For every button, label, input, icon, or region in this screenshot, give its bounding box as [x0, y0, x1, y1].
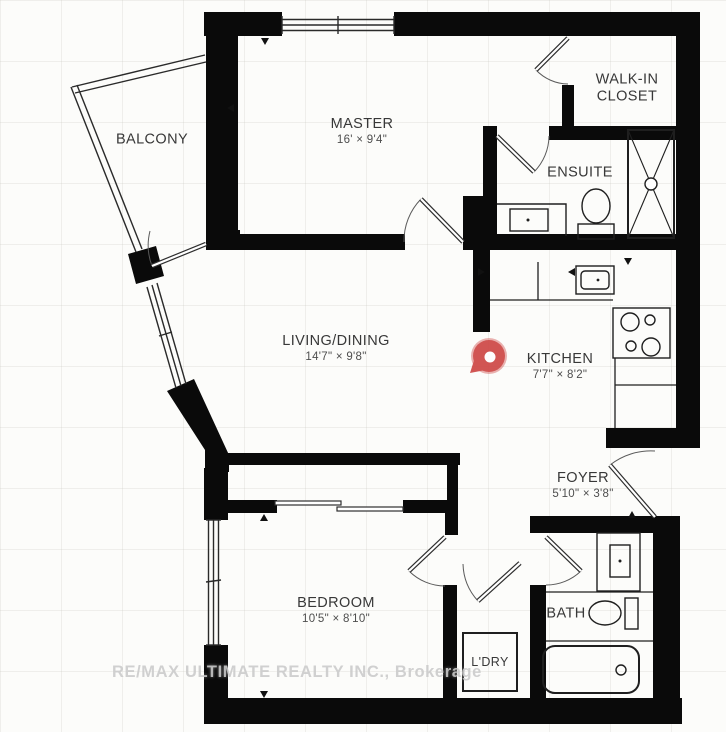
location-pin-icon: [470, 338, 507, 374]
closet-door-arc: [536, 70, 568, 84]
laundry-door-arc: [463, 564, 478, 601]
floor-plan-drawing: [0, 0, 726, 732]
stove-icon: [613, 308, 670, 358]
bathtub-icon: [543, 646, 639, 693]
kitchen-sink-icon: [576, 266, 614, 294]
floor-plan: BALCONY MASTER 16' × 9'4" WALK-IN CLOSET…: [0, 0, 726, 732]
ensuite-door-arc: [534, 136, 549, 172]
bath-door-arc: [546, 571, 581, 585]
ensuite-vanity-sink-icon: [497, 204, 566, 236]
ensuite-toilet-icon: [578, 189, 614, 239]
master-door-arc: [404, 199, 421, 242]
brokerage-watermark: RE/MAX ULTIMATE REALTY INC., Brokerage: [112, 663, 482, 682]
sliding-door: [275, 501, 403, 511]
bedroom-door-arc: [409, 571, 445, 586]
shower-icon: [628, 130, 674, 238]
washer-icon: [463, 633, 517, 691]
bath-toilet-icon: [589, 598, 638, 629]
entry-door-arc: [610, 451, 655, 465]
kitchen-counter: [490, 262, 676, 428]
